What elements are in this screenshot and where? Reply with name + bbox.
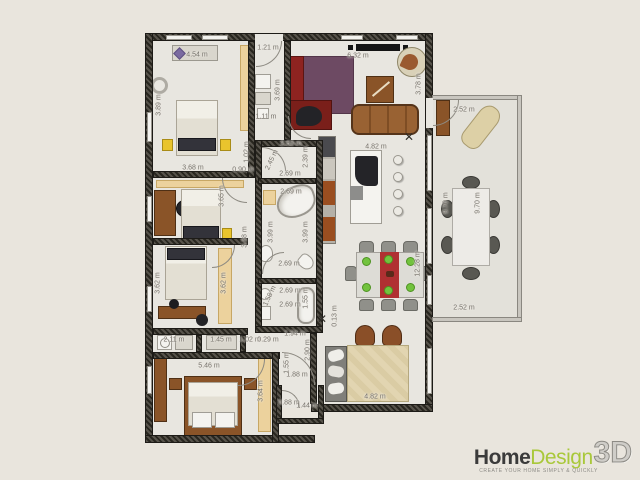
plate bbox=[406, 283, 415, 292]
round-mirror[interactable] bbox=[151, 77, 168, 94]
plate bbox=[362, 257, 371, 266]
bar-stool[interactable] bbox=[393, 155, 403, 165]
wall[interactable] bbox=[255, 140, 262, 333]
wall[interactable] bbox=[240, 335, 246, 352]
washing-machine[interactable] bbox=[255, 74, 271, 89]
terrace-chair[interactable] bbox=[462, 267, 480, 280]
shelf[interactable] bbox=[206, 335, 237, 350]
sofa-bed[interactable] bbox=[347, 345, 409, 402]
entry-door-opening[interactable] bbox=[255, 34, 283, 41]
island-hob bbox=[350, 186, 363, 200]
bar-stool[interactable] bbox=[393, 172, 403, 182]
office-chair[interactable] bbox=[196, 314, 208, 326]
sink[interactable] bbox=[355, 156, 378, 186]
ceiling-fan-icon[interactable]: ✕ bbox=[317, 313, 327, 325]
tv-screen[interactable] bbox=[356, 44, 400, 51]
armchair[interactable] bbox=[382, 325, 402, 346]
wall[interactable] bbox=[145, 435, 315, 443]
shelf[interactable] bbox=[255, 92, 271, 105]
window[interactable] bbox=[147, 366, 152, 394]
armchair[interactable] bbox=[355, 325, 375, 346]
nightstand[interactable] bbox=[162, 139, 173, 151]
wall[interactable] bbox=[316, 140, 323, 333]
dining-chair[interactable] bbox=[359, 299, 374, 311]
app-canvas: { "branding": { "logo": { "home": "Home"… bbox=[0, 0, 640, 480]
wall[interactable] bbox=[258, 178, 316, 184]
bar-stool[interactable] bbox=[393, 189, 403, 199]
window[interactable] bbox=[147, 112, 152, 142]
window[interactable] bbox=[166, 35, 192, 40]
plate bbox=[384, 255, 393, 264]
centerpiece bbox=[386, 271, 394, 277]
window[interactable] bbox=[427, 135, 432, 191]
wall[interactable] bbox=[248, 41, 255, 178]
terrace-wall[interactable] bbox=[432, 317, 522, 322]
ceiling-fan-icon[interactable]: ✕ bbox=[404, 131, 414, 143]
wardrobe[interactable] bbox=[154, 356, 167, 422]
logo-tagline: CREATE YOUR HOME SIMPLY & QUICKLY bbox=[474, 469, 598, 474]
wall[interactable] bbox=[153, 238, 248, 245]
wall[interactable] bbox=[153, 352, 280, 359]
floor-plan: ✕ bbox=[0, 0, 640, 480]
speaker-icon bbox=[348, 45, 353, 50]
window[interactable] bbox=[147, 196, 152, 222]
bathtub[interactable] bbox=[297, 287, 315, 324]
plate bbox=[362, 283, 371, 292]
terrace-wall[interactable] bbox=[517, 95, 522, 322]
wall[interactable] bbox=[153, 328, 248, 335]
wall[interactable] bbox=[276, 418, 324, 424]
bed-foot-dresser[interactable] bbox=[178, 138, 216, 151]
window[interactable] bbox=[427, 348, 432, 394]
nightstand[interactable] bbox=[169, 378, 182, 390]
wall[interactable] bbox=[196, 335, 202, 352]
washer-door-icon bbox=[160, 338, 170, 348]
bed-cushion bbox=[192, 412, 212, 428]
terrace-table[interactable] bbox=[452, 188, 490, 266]
wall[interactable] bbox=[255, 140, 323, 147]
wall[interactable] bbox=[258, 278, 316, 284]
desk[interactable] bbox=[154, 190, 176, 236]
dining-chair[interactable] bbox=[403, 299, 418, 311]
plate bbox=[384, 286, 393, 295]
window[interactable] bbox=[341, 35, 363, 40]
window[interactable] bbox=[147, 286, 152, 312]
bed-cushion bbox=[215, 412, 235, 428]
wall[interactable] bbox=[153, 171, 248, 178]
terrace-door-opening[interactable] bbox=[426, 98, 433, 128]
nightstand[interactable] bbox=[220, 139, 231, 151]
wall[interactable] bbox=[311, 404, 433, 412]
window[interactable] bbox=[427, 208, 432, 264]
window[interactable] bbox=[427, 275, 432, 305]
window[interactable] bbox=[202, 35, 228, 40]
dining-chair[interactable] bbox=[381, 299, 396, 311]
table-lamp[interactable] bbox=[169, 299, 179, 309]
wall[interactable] bbox=[255, 326, 323, 333]
homedesign3d-logo: HomeDesign3D CREATE YOUR HOME SIMPLY & Q… bbox=[474, 438, 632, 474]
window[interactable] bbox=[396, 35, 418, 40]
logo-home: Home bbox=[474, 447, 530, 468]
bar-stool[interactable] bbox=[393, 206, 403, 216]
logo-design: Design bbox=[530, 447, 592, 468]
shelf[interactable] bbox=[175, 335, 193, 350]
bath-cabinet[interactable] bbox=[263, 190, 276, 205]
plate bbox=[406, 257, 415, 266]
logo-3d: 3D bbox=[594, 438, 632, 468]
bed-pillows bbox=[167, 248, 205, 260]
cabinet[interactable] bbox=[257, 108, 269, 119]
